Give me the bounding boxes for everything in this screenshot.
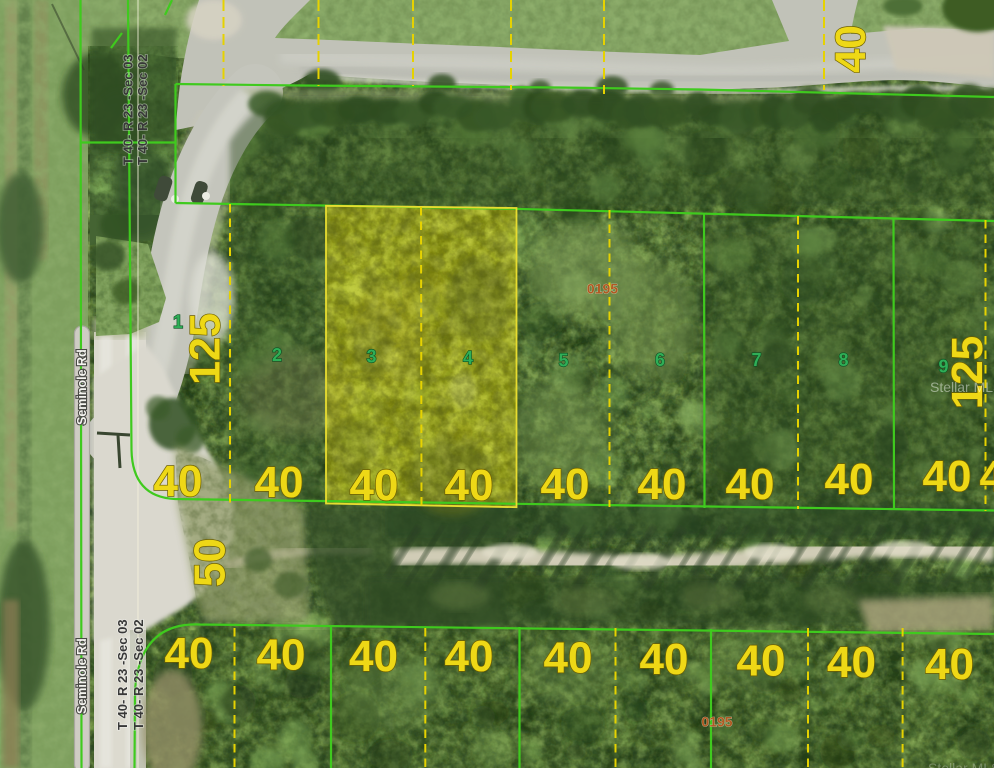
svg-text:40: 40 bbox=[980, 452, 994, 501]
svg-text:125: 125 bbox=[943, 336, 992, 409]
svg-text:Seminole Rd: Seminole Rd bbox=[75, 638, 89, 714]
svg-text:Stellar MLS: Stellar MLS bbox=[930, 379, 994, 395]
svg-text:40: 40 bbox=[257, 631, 306, 680]
svg-text:40: 40 bbox=[445, 461, 494, 510]
svg-text:40: 40 bbox=[349, 632, 398, 681]
svg-text:40: 40 bbox=[923, 452, 972, 501]
svg-text:4: 4 bbox=[463, 348, 473, 368]
svg-text:40: 40 bbox=[827, 25, 875, 73]
svg-text:8: 8 bbox=[838, 350, 848, 370]
svg-text:T 40- R 23 -Sec 02: T 40- R 23 -Sec 02 bbox=[135, 54, 150, 165]
svg-text:0195: 0195 bbox=[701, 714, 732, 730]
svg-text:Seminole Rd: Seminole Rd bbox=[75, 349, 89, 425]
svg-text:6: 6 bbox=[655, 350, 665, 370]
svg-text:40: 40 bbox=[350, 461, 399, 510]
svg-text:40: 40 bbox=[825, 455, 874, 504]
svg-text:0195: 0195 bbox=[587, 281, 618, 297]
svg-text:T 40- R 23 -Sec 02: T 40- R 23 -Sec 02 bbox=[131, 619, 146, 730]
svg-text:2: 2 bbox=[272, 345, 282, 365]
svg-text:Stellar MLS: Stellar MLS bbox=[928, 760, 994, 768]
svg-text:40: 40 bbox=[827, 638, 876, 687]
svg-text:40: 40 bbox=[925, 640, 974, 689]
svg-text:40: 40 bbox=[737, 637, 786, 686]
svg-text:40: 40 bbox=[165, 629, 214, 678]
svg-text:40: 40 bbox=[154, 457, 203, 506]
svg-text:50: 50 bbox=[186, 538, 235, 587]
svg-text:T 40- R 23 -Sec 03: T 40- R 23 -Sec 03 bbox=[115, 619, 130, 730]
svg-text:40: 40 bbox=[544, 634, 593, 683]
svg-text:1: 1 bbox=[173, 312, 183, 332]
svg-text:40: 40 bbox=[445, 632, 494, 681]
svg-text:T 40- R 23 -Sec 03: T 40- R 23 -Sec 03 bbox=[121, 54, 136, 165]
svg-text:40: 40 bbox=[726, 460, 775, 509]
svg-text:40: 40 bbox=[541, 460, 590, 509]
svg-text:9: 9 bbox=[938, 357, 948, 377]
svg-text:7: 7 bbox=[751, 350, 761, 370]
svg-text:5: 5 bbox=[558, 351, 568, 371]
svg-text:125: 125 bbox=[182, 313, 230, 385]
svg-text:40: 40 bbox=[638, 460, 687, 509]
svg-text:40: 40 bbox=[640, 635, 689, 684]
svg-text:3: 3 bbox=[366, 347, 376, 367]
svg-text:40: 40 bbox=[255, 458, 304, 507]
